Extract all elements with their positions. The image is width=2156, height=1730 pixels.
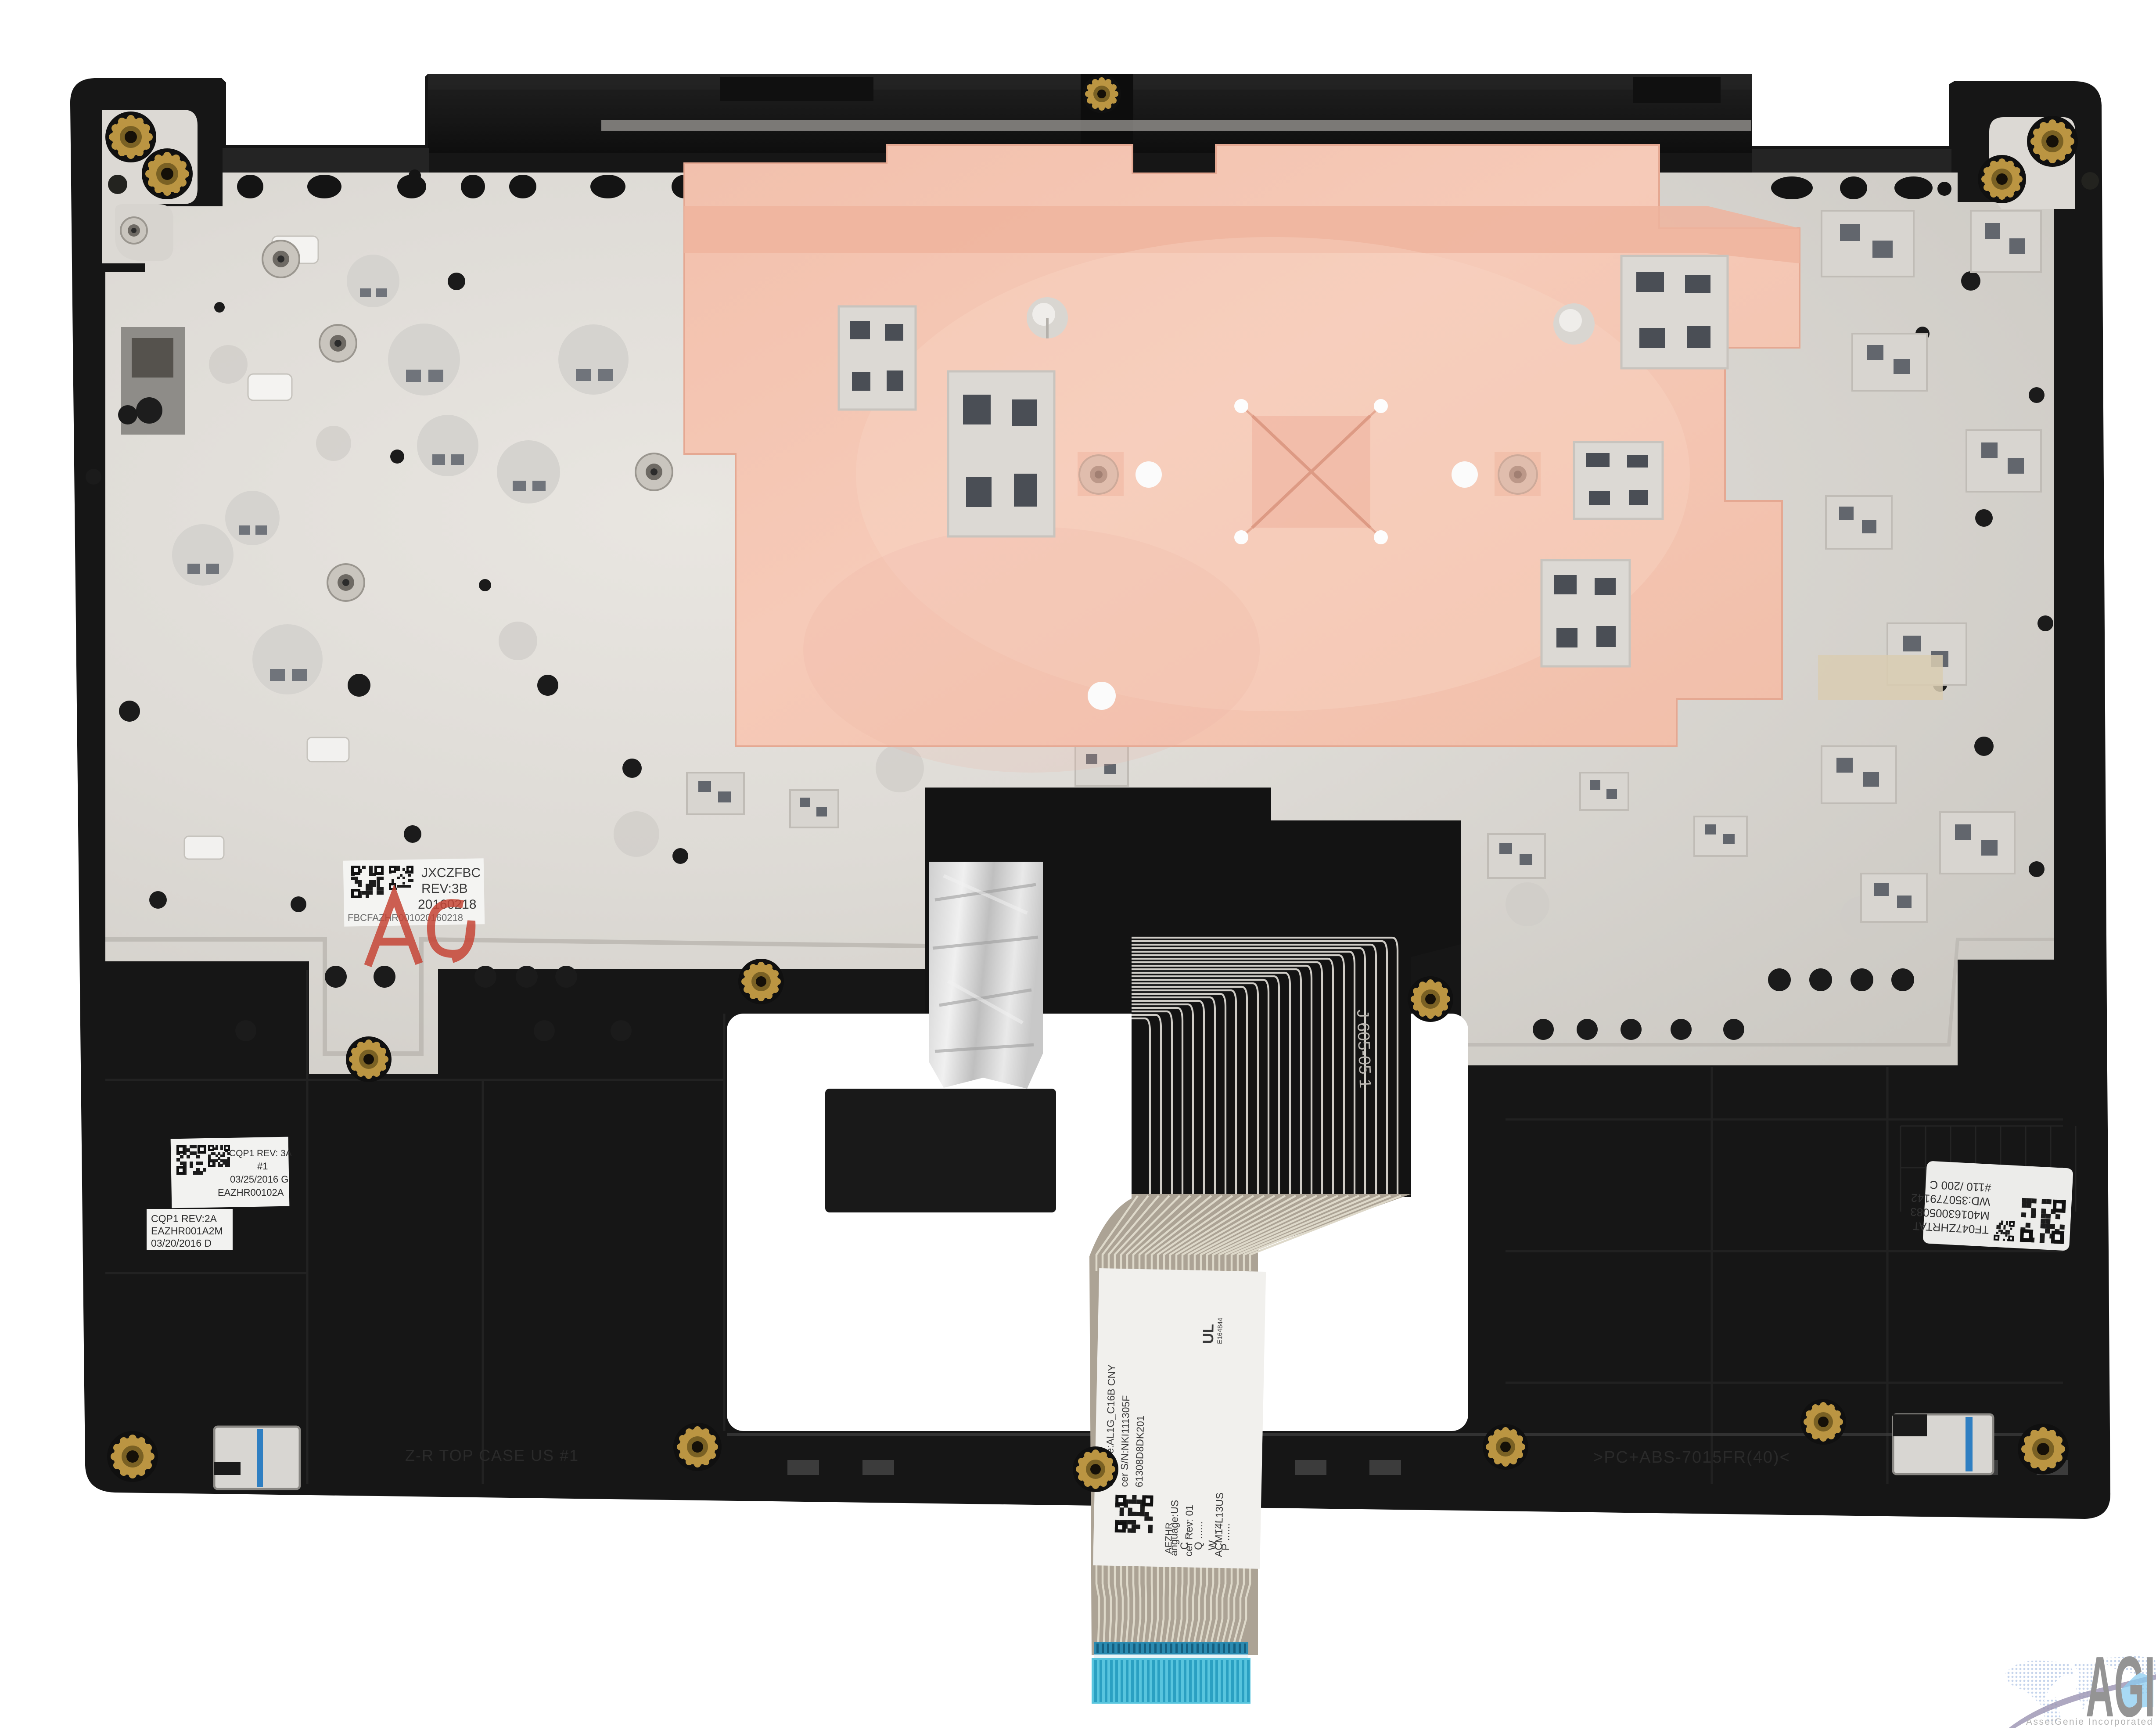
svg-text:cer S/N:NKI111305F: cer S/N:NKI111305F [1118,1395,1132,1487]
svg-text:W ......: W ...... [1207,1520,1219,1550]
svg-text:JXCZFBC: JXCZFBC [421,866,481,880]
svg-text:AGI: AGI [2086,1639,2156,1728]
svg-text:P ......: P ...... [1220,1523,1232,1551]
svg-text:#1: #1 [257,1161,268,1172]
svg-text:J 605-05 1: J 605-05 1 [1353,1009,1374,1089]
svg-text:EAZHR00102A: EAZHR00102A [218,1187,284,1198]
svg-text:03/25/2016 G: 03/25/2016 G [230,1174,288,1185]
svg-text:E164844: E164844 [1216,1318,1224,1344]
svg-text:>PC+ABS-7015FR(40)<: >PC+ABS-7015FR(40)< [1593,1448,1790,1467]
svg-text:61308D8DK201: 61308D8DK201 [1133,1415,1146,1487]
svg-text:CQP1 REV:2A: CQP1 REV:2A [151,1213,217,1224]
svg-text:03/20/2016 D: 03/20/2016 D [151,1237,212,1249]
svg-text:CQP1 REV: 3A: CQP1 REV: 3A [229,1148,292,1158]
svg-text:AssetGenie Incorporated: AssetGenie Incorporated [2026,1717,2153,1727]
svg-text:Z-R TOP CASE US #1: Z-R TOP CASE US #1 [405,1446,579,1464]
svg-text:Q ......: Q ...... [1193,1521,1205,1550]
svg-text:UL: UL [1200,1324,1217,1344]
svg-text:REV:3B: REV:3B [421,881,468,896]
svg-text:C ......: C ...... [1179,1521,1191,1550]
svg-text:EAZHR001A2M: EAZHR001A2M [151,1225,223,1237]
svg-text:AEZHR: AEZHR [1164,1522,1174,1554]
